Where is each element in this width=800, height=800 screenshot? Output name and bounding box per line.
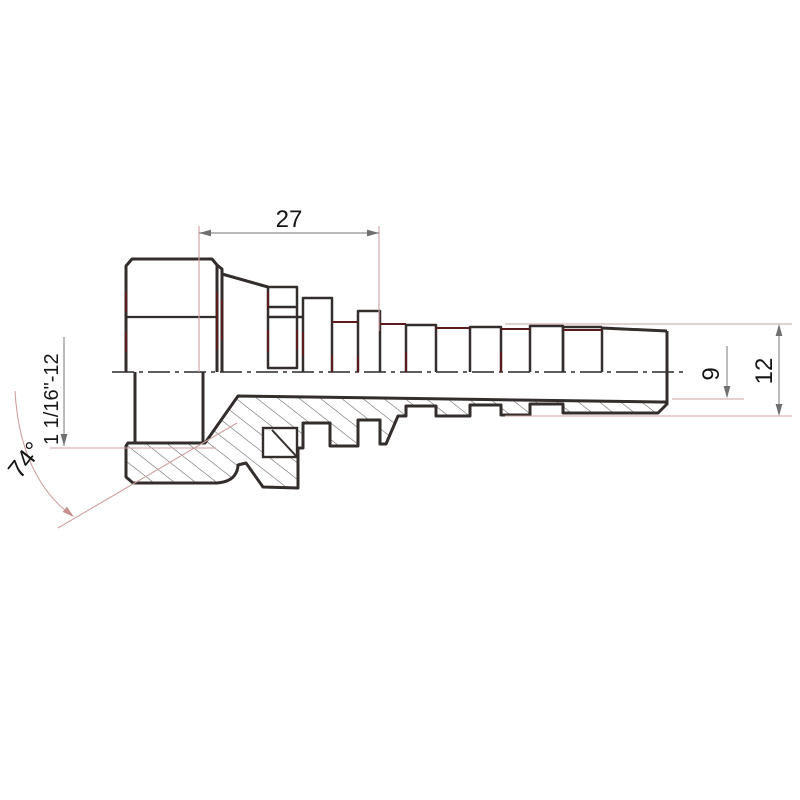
dimension-27: 27 (199, 206, 379, 372)
thread-bore-edge (135, 372, 203, 443)
nut-outline (126, 259, 268, 372)
collar-ring-lower (268, 317, 297, 368)
technical-drawing-page: 27 1 1/16"-12 74° 9 12 (0, 0, 800, 800)
tip-taper (602, 328, 667, 331)
extension-lines-27 (199, 226, 379, 372)
fitting-technical-drawing: 27 1 1/16"-12 74° 9 12 (0, 0, 800, 800)
dimension-thread-label: 1 1/16"-12 (41, 353, 63, 445)
dimension-12-label: 12 (751, 358, 778, 385)
section-hatching (126, 372, 667, 488)
dimension-27-label: 27 (276, 206, 303, 233)
collar-ring-upper (268, 287, 297, 307)
nut-cone-transition (222, 274, 268, 287)
hose-tail-outline (268, 287, 667, 404)
dimension-thread: 1 1/16"-12 (41, 337, 216, 448)
barb-teeth (303, 298, 602, 372)
dimension-9-label: 9 (698, 367, 725, 380)
